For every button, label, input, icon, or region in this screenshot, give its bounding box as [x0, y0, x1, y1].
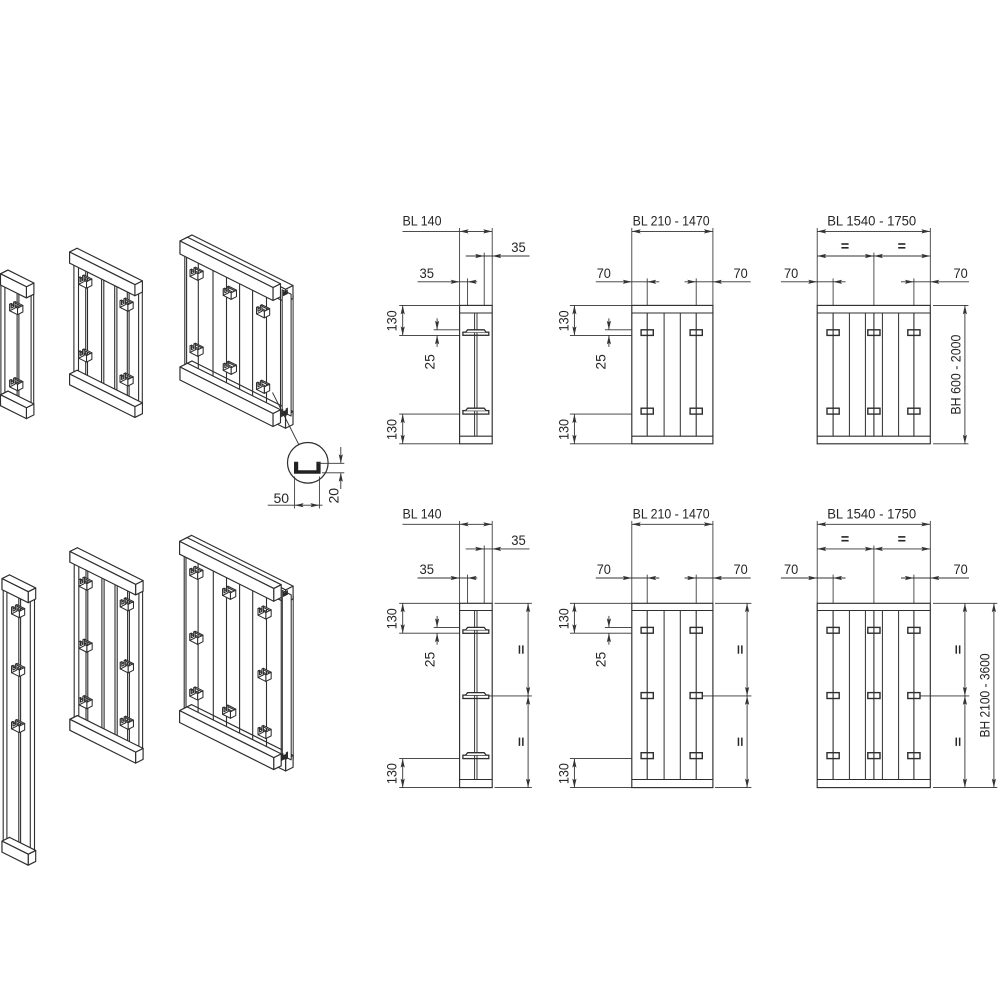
svg-text:130: 130: [384, 608, 400, 629]
svg-text:70: 70: [954, 265, 968, 281]
svg-text:BL 140: BL 140: [403, 212, 442, 228]
svg-text:130: 130: [556, 419, 572, 440]
svg-text:130: 130: [384, 763, 400, 784]
svg-text:BH 600 - 2000: BH 600 - 2000: [947, 334, 963, 414]
svg-text:70: 70: [597, 561, 611, 577]
svg-text:BL 140: BL 140: [403, 505, 442, 521]
svg-text:50: 50: [274, 490, 290, 506]
svg-text:70: 70: [954, 561, 968, 577]
svg-text:BL 210 - 1470: BL 210 - 1470: [633, 505, 710, 521]
svg-text:BL 1540 - 1750: BL 1540 - 1750: [827, 505, 916, 521]
svg-text:BH 2100 - 3600: BH 2100 - 3600: [977, 653, 993, 737]
svg-text:70: 70: [734, 561, 748, 577]
svg-text:35: 35: [420, 265, 435, 281]
svg-text:70: 70: [784, 561, 798, 577]
svg-text:25: 25: [592, 354, 608, 370]
svg-text:130: 130: [384, 419, 400, 440]
svg-text:BL 210 - 1470: BL 210 - 1470: [633, 212, 710, 228]
svg-text:70: 70: [734, 265, 748, 281]
svg-text:130: 130: [556, 608, 572, 629]
svg-text:70: 70: [597, 265, 611, 281]
svg-text:20: 20: [326, 488, 342, 504]
svg-text:70: 70: [784, 265, 798, 281]
svg-text:130: 130: [384, 310, 400, 331]
svg-text:130: 130: [556, 310, 572, 331]
svg-text:130: 130: [556, 763, 572, 784]
svg-text:25: 25: [422, 354, 438, 370]
svg-text:35: 35: [420, 561, 435, 577]
svg-text:25: 25: [592, 652, 608, 668]
svg-text:BL 1540 - 1750: BL 1540 - 1750: [827, 212, 916, 228]
svg-text:35: 35: [511, 239, 526, 255]
svg-text:25: 25: [422, 652, 438, 668]
svg-text:35: 35: [511, 532, 526, 548]
